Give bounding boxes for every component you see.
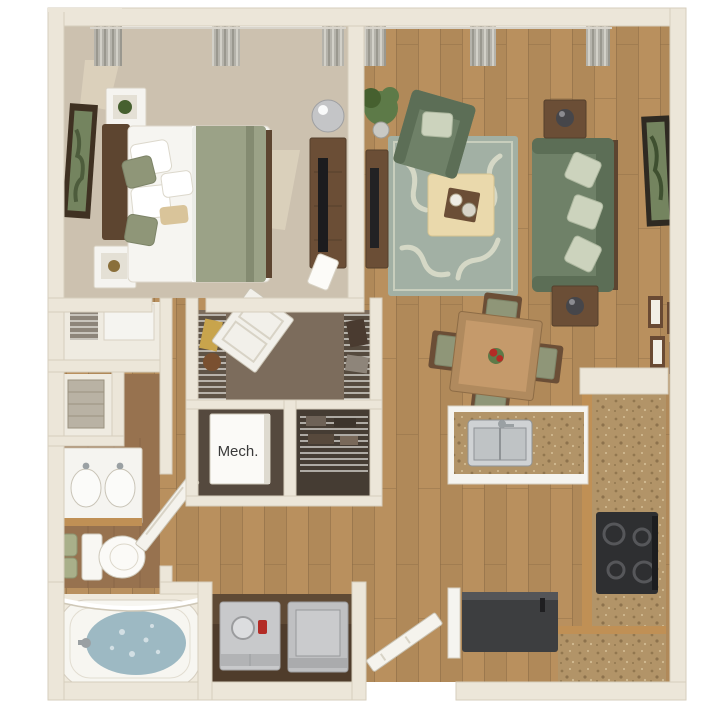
wall-under-niche bbox=[48, 436, 124, 446]
outer-wall-top bbox=[48, 8, 686, 26]
sink-peninsula bbox=[448, 406, 588, 484]
nightstand-top bbox=[106, 88, 146, 128]
sofa-pillows bbox=[563, 151, 604, 273]
bedroom-tv bbox=[318, 158, 328, 252]
vanity-base bbox=[62, 518, 142, 526]
floorplan-canvas: Mech. bbox=[0, 0, 715, 714]
wall-bedroom-bottom-a bbox=[48, 298, 152, 312]
floorplan-3d-render: Mech. bbox=[0, 0, 715, 714]
kitchen-sink bbox=[468, 420, 532, 466]
ottoman bbox=[428, 174, 494, 236]
dryer-door bbox=[296, 610, 340, 656]
washer-button bbox=[258, 620, 267, 634]
stove bbox=[596, 512, 658, 594]
mesh-lamp bbox=[312, 100, 344, 132]
bath-water bbox=[86, 611, 186, 675]
mech-label: Mech. bbox=[218, 443, 259, 460]
bed bbox=[102, 124, 272, 282]
basket-niche bbox=[64, 374, 112, 438]
end-table-bottom bbox=[552, 286, 598, 326]
media-console bbox=[366, 150, 388, 268]
wall-laundry-entry bbox=[352, 582, 366, 700]
dining-table bbox=[449, 311, 542, 401]
living-tv bbox=[370, 168, 379, 248]
linen-closet-shelves bbox=[300, 412, 368, 472]
wall-bath-hall-upper bbox=[160, 298, 172, 474]
table-lamp bbox=[566, 297, 584, 315]
wall-tub-laundry bbox=[198, 582, 212, 700]
vanity-sinks bbox=[62, 448, 142, 526]
mech-room: Mech. bbox=[210, 414, 270, 484]
throw-pillow bbox=[159, 205, 189, 226]
armchair-pillow bbox=[421, 112, 453, 138]
tub-room bbox=[60, 594, 200, 690]
refrigerator bbox=[448, 588, 558, 658]
end-table-top bbox=[544, 100, 586, 138]
faucet bbox=[117, 463, 124, 470]
toilet bbox=[82, 534, 145, 580]
plant-pot bbox=[373, 122, 389, 138]
serving-tray bbox=[444, 187, 481, 222]
table-lamp bbox=[556, 109, 574, 127]
sofa bbox=[532, 138, 618, 292]
duvet-fold bbox=[246, 126, 254, 282]
duvet bbox=[192, 126, 266, 282]
fridge-handle bbox=[540, 598, 545, 612]
wall-niche-right bbox=[112, 372, 124, 438]
wall-bedroom-living bbox=[348, 26, 364, 304]
washer bbox=[220, 602, 280, 670]
wall-mech-linen bbox=[284, 400, 296, 506]
wall-bedroom-bottom-b bbox=[206, 298, 364, 312]
clothes-brown bbox=[203, 353, 221, 371]
wall-tub-left bbox=[48, 582, 64, 700]
kitchen-counter-bottom bbox=[558, 634, 666, 682]
outer-wall-right bbox=[670, 8, 686, 700]
wall-closet-bottom bbox=[186, 496, 382, 506]
kitchen-half-wall bbox=[580, 368, 668, 394]
wall-under-storage bbox=[48, 360, 160, 372]
sofa-arm-top bbox=[532, 138, 614, 154]
laundry-closet bbox=[212, 594, 352, 682]
outer-wall-bottom-right bbox=[456, 682, 686, 700]
wire-basket bbox=[70, 308, 98, 340]
faucet bbox=[83, 463, 90, 470]
dryer bbox=[288, 602, 348, 672]
stove-controls bbox=[652, 516, 658, 590]
washer-dial bbox=[232, 617, 254, 639]
